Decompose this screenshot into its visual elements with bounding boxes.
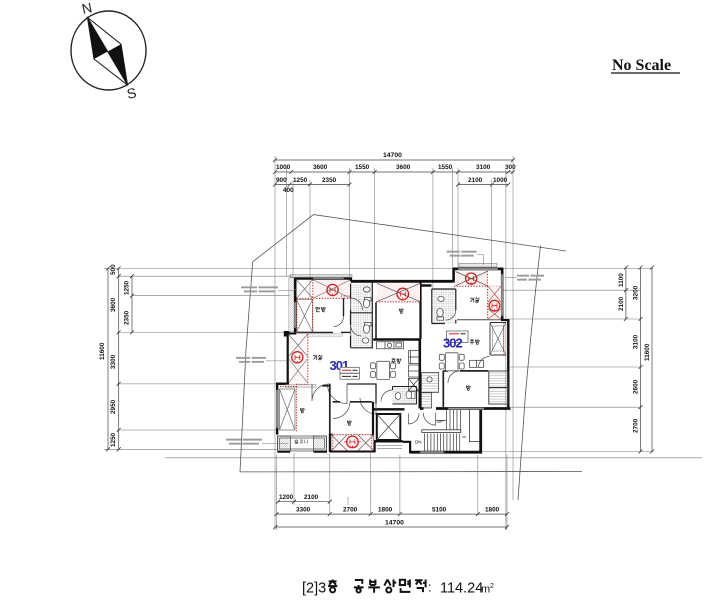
svg-text:1800: 1800 <box>485 507 500 514</box>
svg-text:3600: 3600 <box>396 164 411 171</box>
svg-text:3600: 3600 <box>313 164 328 171</box>
svg-text:2100: 2100 <box>618 296 625 311</box>
svg-text:2600: 2600 <box>633 379 640 394</box>
svg-text:1100: 1100 <box>618 273 625 287</box>
svg-text:2100: 2100 <box>304 494 319 501</box>
svg-text:11600: 11600 <box>99 342 106 360</box>
svg-text:302: 302 <box>443 336 462 351</box>
svg-text:2350: 2350 <box>124 310 131 325</box>
svg-text:m: m <box>481 584 490 596</box>
svg-text:1000: 1000 <box>276 164 291 171</box>
svg-text:1550: 1550 <box>355 164 370 171</box>
svg-text:300: 300 <box>505 164 516 171</box>
svg-text:14700: 14700 <box>385 520 404 527</box>
svg-text:114.24: 114.24 <box>440 581 483 597</box>
svg-text:No Scale: No Scale <box>612 57 671 74</box>
svg-text:2700: 2700 <box>633 418 640 433</box>
svg-text:1000: 1000 <box>493 177 508 184</box>
svg-text:2: 2 <box>490 583 494 590</box>
svg-text:2700: 2700 <box>343 507 358 514</box>
svg-text:3300: 3300 <box>296 507 311 514</box>
svg-text:3300: 3300 <box>110 354 117 369</box>
svg-text:500: 500 <box>110 264 117 275</box>
svg-text:11600: 11600 <box>644 343 651 361</box>
svg-text:2350: 2350 <box>322 177 337 184</box>
svg-text:3100: 3100 <box>476 164 491 171</box>
svg-text:1200: 1200 <box>279 494 294 501</box>
svg-text:5100: 5100 <box>432 507 447 514</box>
svg-text:[2]3: [2]3 <box>302 581 326 597</box>
svg-text:2100: 2100 <box>468 177 483 184</box>
svg-text:14700: 14700 <box>383 152 402 159</box>
svg-text:2950: 2950 <box>110 399 117 414</box>
svg-text:900: 900 <box>276 177 287 184</box>
svg-text:3200: 3200 <box>633 285 640 300</box>
svg-text::: : <box>428 580 432 595</box>
svg-text:3600: 3600 <box>110 297 117 312</box>
svg-text:UP: UP <box>437 419 443 424</box>
svg-text:1250: 1250 <box>110 432 117 447</box>
svg-text:400: 400 <box>283 187 294 194</box>
svg-text:1250: 1250 <box>124 280 131 295</box>
svg-text:DN: DN <box>415 440 422 445</box>
svg-text:1250: 1250 <box>293 177 308 184</box>
svg-text:3100: 3100 <box>633 334 640 349</box>
svg-text:1550: 1550 <box>438 164 453 171</box>
svg-text:1800: 1800 <box>378 507 393 514</box>
